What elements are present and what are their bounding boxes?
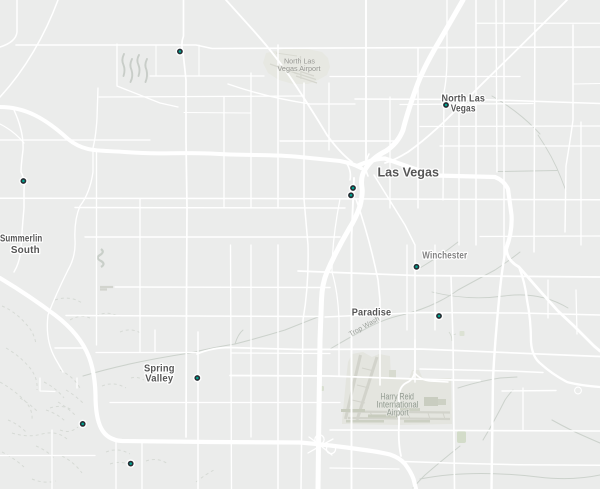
- svg-text:Vegas Airport: Vegas Airport: [278, 64, 322, 73]
- svg-text:Airport: Airport: [387, 407, 409, 417]
- svg-text:Las Vegas: Las Vegas: [377, 164, 439, 179]
- svg-text:Winchester: Winchester: [422, 251, 467, 262]
- svg-text:Valley: Valley: [145, 374, 173, 385]
- svg-text:Paradise: Paradise: [352, 307, 392, 318]
- svg-text:Vegas: Vegas: [451, 104, 476, 115]
- svg-text:South: South: [11, 245, 40, 256]
- svg-text:Summerlin: Summerlin: [0, 233, 42, 244]
